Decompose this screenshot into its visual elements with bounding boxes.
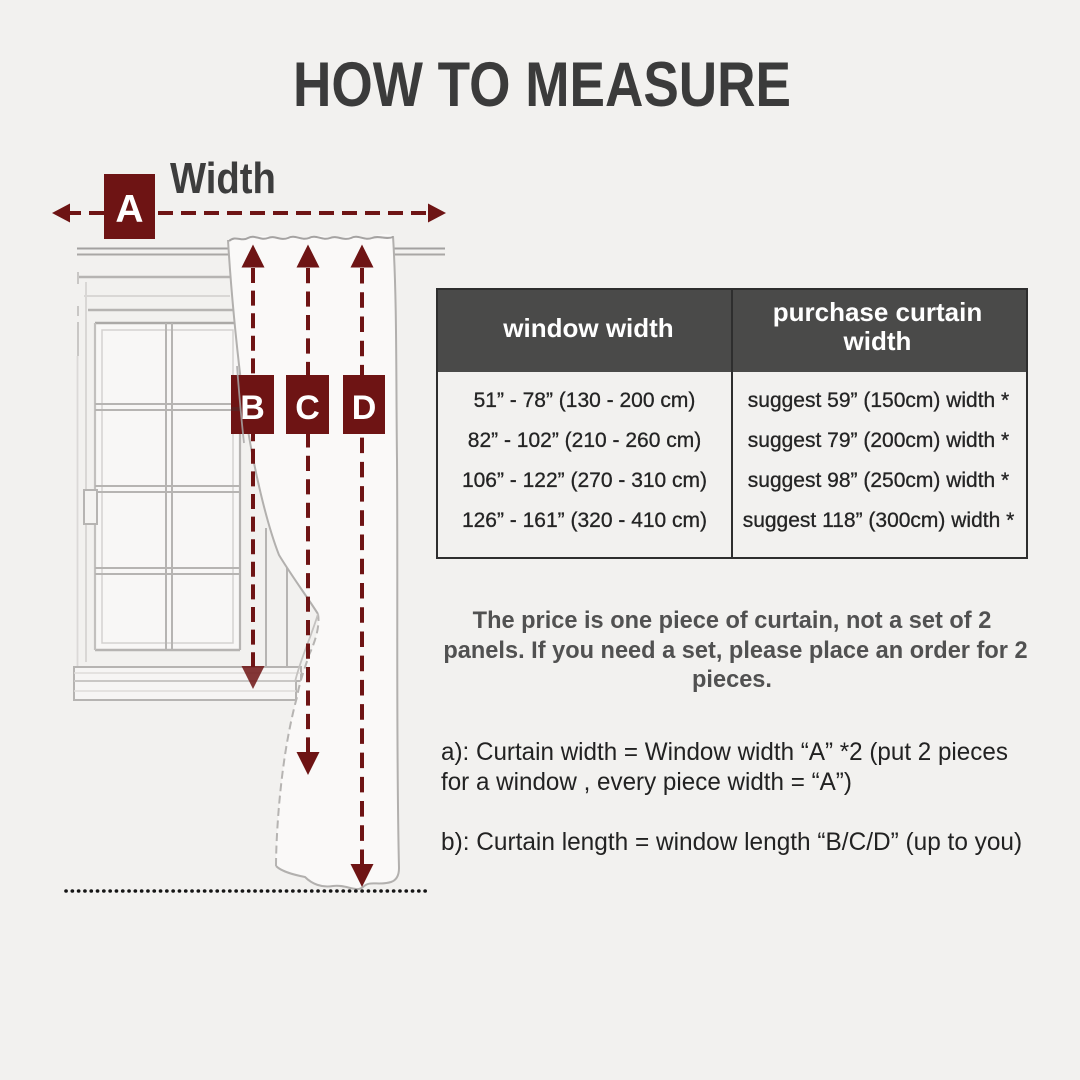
svg-text:D: D: [352, 389, 377, 427]
svg-text:A: A: [115, 188, 143, 231]
svg-text:Width: Width: [170, 154, 276, 203]
svg-text:C: C: [295, 389, 320, 427]
svg-text:B: B: [240, 389, 265, 427]
